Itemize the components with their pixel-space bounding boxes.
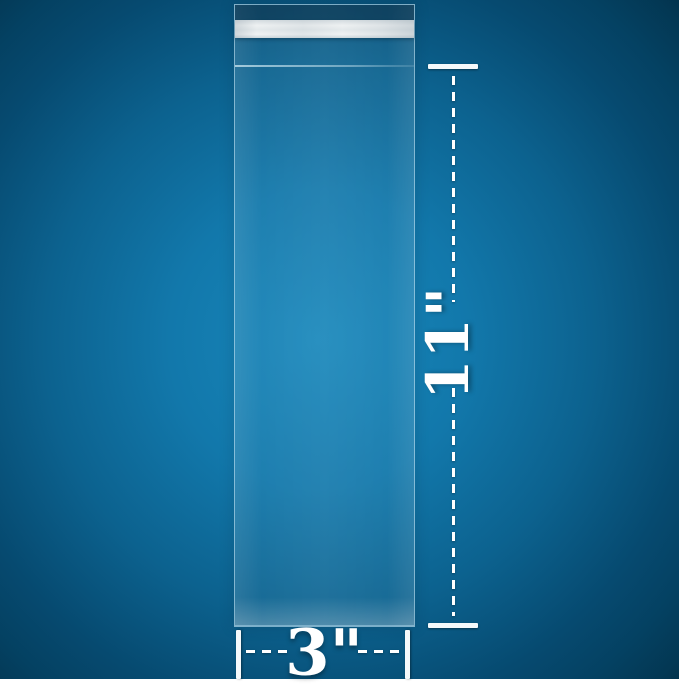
product-scene: 11" 3"	[0, 0, 679, 679]
background-vignette	[0, 0, 679, 679]
